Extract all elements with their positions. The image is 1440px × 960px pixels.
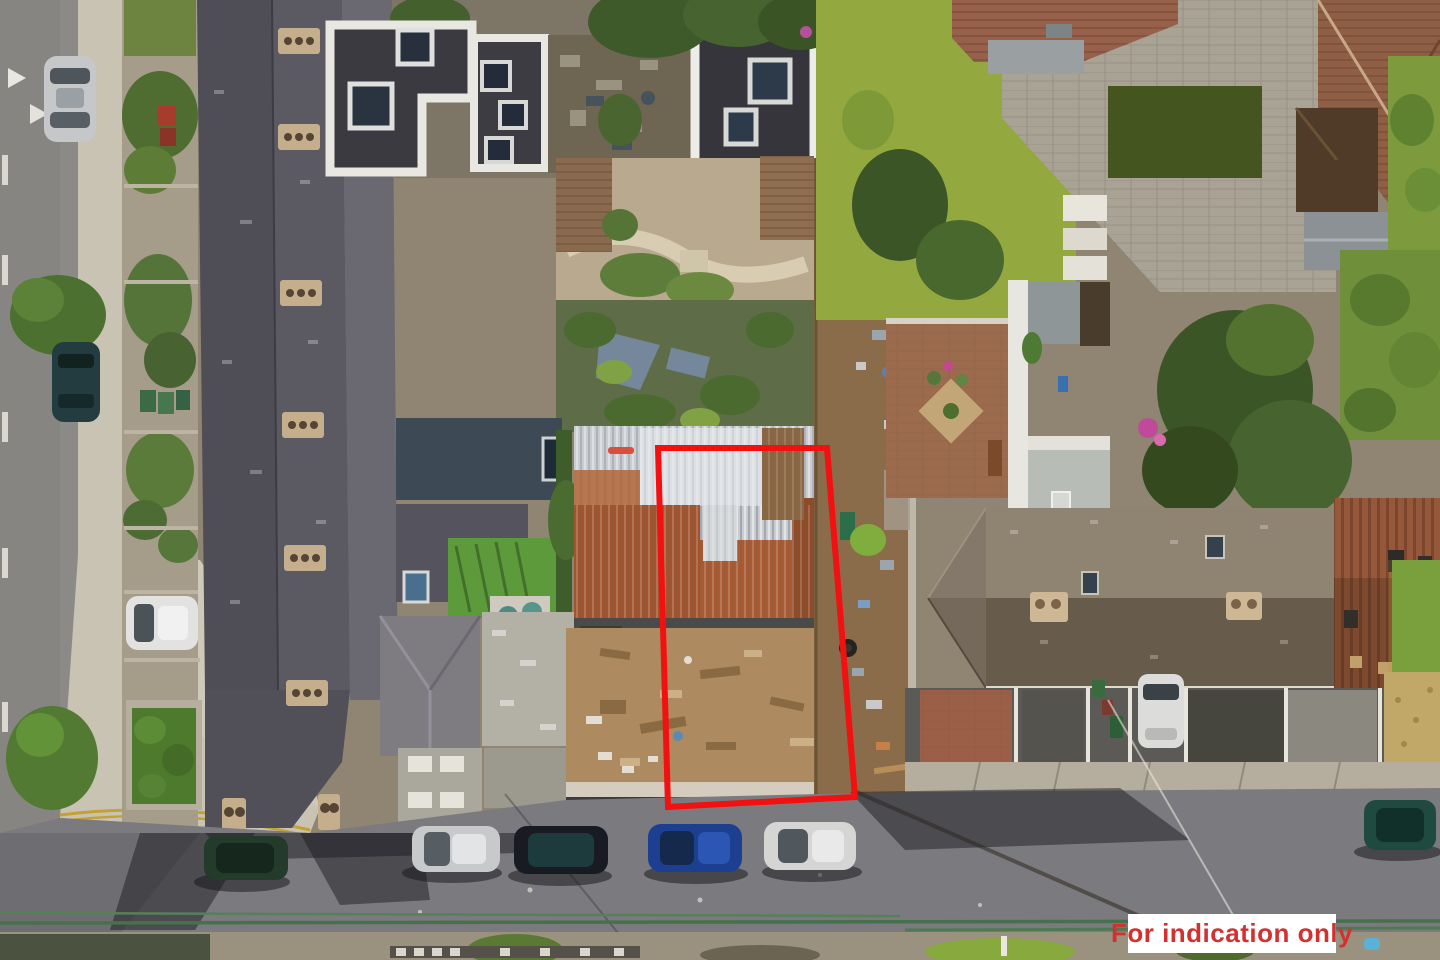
skylight	[404, 572, 428, 602]
debris	[673, 731, 683, 741]
green-bin	[140, 390, 156, 412]
bicycle	[1058, 376, 1068, 392]
aerial-scene: For indication only	[0, 0, 1440, 960]
parked-car-blue	[644, 824, 748, 884]
pink-flower	[800, 26, 812, 38]
parked-car-silver	[402, 826, 502, 883]
house-fronts-right	[905, 672, 1440, 800]
aerial-photo: For indication only	[0, 0, 1440, 960]
parked-car-darkgreen	[194, 836, 290, 892]
parked-car-darkteal-left	[52, 342, 100, 422]
courtyard	[886, 318, 1010, 498]
parked-car-white	[762, 822, 862, 882]
parked-car-teal	[1354, 800, 1440, 861]
artificial-grass-patch	[1108, 86, 1262, 178]
parked-car-black	[508, 826, 612, 886]
blue-object	[1364, 938, 1380, 950]
disclaimer-text: For indication only	[1111, 918, 1353, 948]
parked-car-silver-top	[44, 56, 96, 142]
parked-car-white-driveway	[1138, 674, 1184, 748]
chimney	[1030, 592, 1068, 622]
disclaimer-badge: For indication only	[1111, 914, 1353, 953]
skylight	[350, 84, 392, 128]
front-gardens-left	[122, 0, 202, 830]
red-paint-mark	[608, 447, 634, 454]
bench	[988, 440, 1002, 476]
skylight	[1206, 536, 1224, 558]
bollard	[1001, 936, 1007, 956]
green-bin	[1092, 680, 1105, 697]
right-house-hip-roof	[928, 508, 1334, 691]
parked-car-white-left	[126, 596, 198, 650]
rear-extensions-mid	[380, 418, 584, 824]
patio-furniture	[1063, 195, 1107, 221]
tram-crossing	[390, 946, 640, 958]
pink-laundry	[1138, 418, 1158, 438]
red-bin	[158, 106, 176, 126]
